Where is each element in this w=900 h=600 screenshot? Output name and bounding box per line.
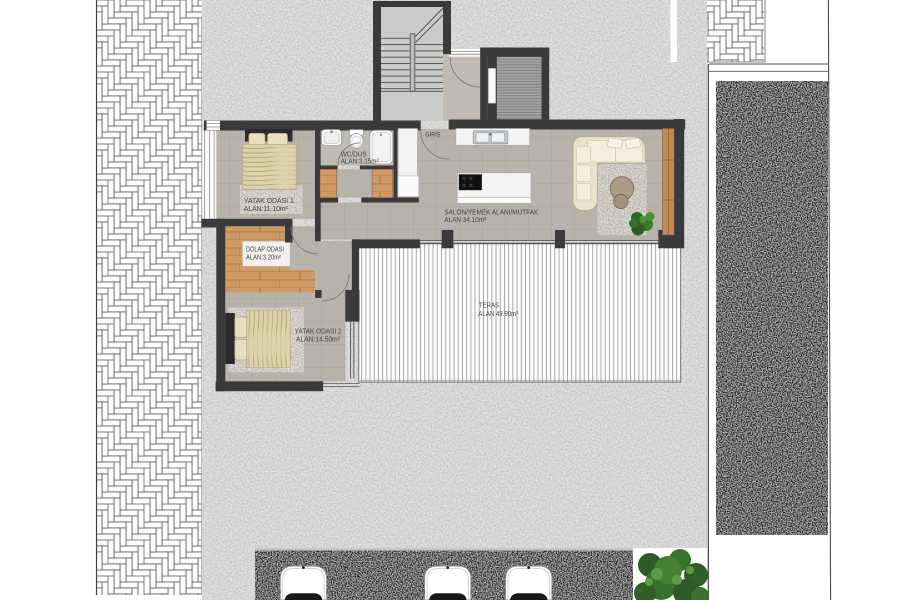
svg-text:WC/DUS: WC/DUS	[341, 152, 367, 159]
svg-text:SALON/YEMEK ALANI/MUTFAK: SALON/YEMEK ALANI/MUTFAK	[444, 210, 538, 217]
svg-text:YATAK ODASI 2: YATAK ODASI 2	[295, 329, 342, 336]
svg-text:ALAN:14.50m²: ALAN:14.50m²	[296, 337, 341, 344]
svg-text:ALAN:3.15m²: ALAN:3.15m²	[341, 159, 380, 166]
svg-text:DOLAP ODASI: DOLAP ODASI	[246, 247, 284, 254]
svg-text:YATAK ODASI 1: YATAK ODASI 1	[244, 198, 294, 205]
svg-text:ALAN:11.10m²: ALAN:11.10m²	[244, 206, 289, 213]
svg-text:ALAN:3.20m²: ALAN:3.20m²	[246, 255, 282, 262]
svg-text:ALAN 49.90m²: ALAN 49.90m²	[478, 311, 519, 318]
svg-text:ALAN 34.10m²: ALAN 34.10m²	[444, 217, 487, 224]
svg-text:TERAS: TERAS	[479, 303, 499, 310]
svg-text:GİRİŞ: GİRİŞ	[425, 130, 441, 139]
